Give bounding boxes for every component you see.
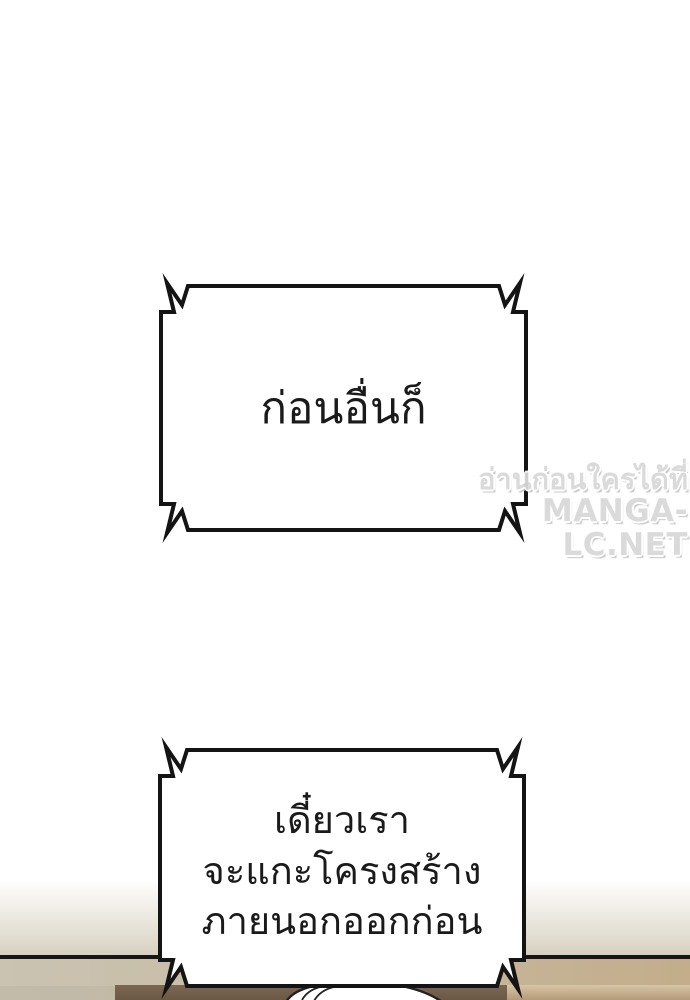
narration-line: ก่อนอื่นก็ [260, 373, 426, 443]
watermark-site-name: MANGA-LC.NET [428, 495, 688, 562]
narration-line: เดี๋ยวเรา [274, 795, 410, 846]
watermark-tagline: อ่านก่อนใครได้ที่ [428, 464, 688, 495]
narration-text-2: เดี๋ยวเรา จะแกะโครงสร้าง ภายนอกออกก่อน [160, 750, 524, 986]
narration-line: ภายนอกออกก่อน [202, 896, 483, 947]
site-watermark: อ่านก่อนใครได้ที่ MANGA-LC.NET [428, 464, 688, 562]
narration-line: จะแกะโครงสร้าง [203, 846, 482, 897]
